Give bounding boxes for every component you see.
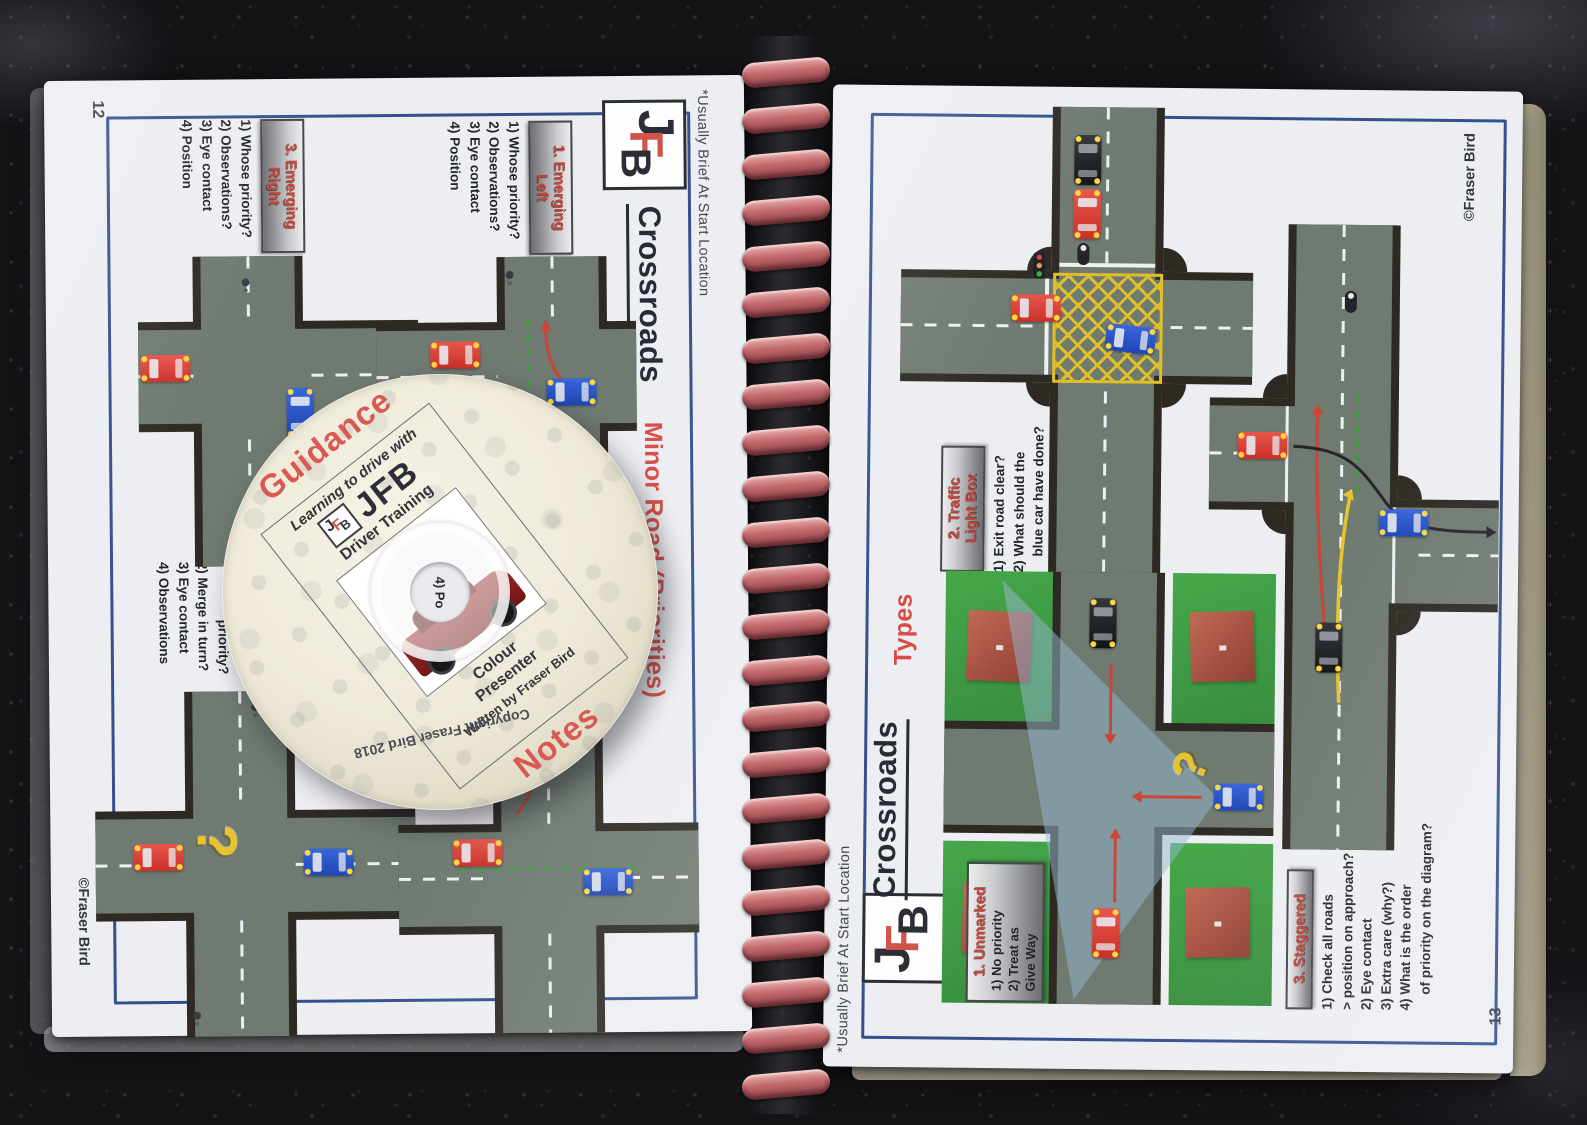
section-heading-line: 2. Traffic bbox=[945, 457, 963, 561]
car-lights bbox=[1378, 509, 1428, 537]
car-lights bbox=[140, 355, 190, 382]
list-item: 4) Position bbox=[177, 120, 198, 254]
kerb-corner bbox=[1398, 475, 1422, 499]
kerb-corner bbox=[1263, 374, 1287, 398]
list-item: 1) Whose priority? bbox=[236, 119, 257, 253]
car-blue bbox=[583, 868, 633, 895]
list-item: 2) Observations? bbox=[484, 121, 505, 255]
cyclist-icon bbox=[1077, 243, 1089, 265]
list-item: 1) Exit road clear? bbox=[989, 426, 1010, 573]
car-lights bbox=[452, 839, 502, 866]
section-heading-box: 2. Traffic Light Box bbox=[940, 446, 985, 572]
list-item: 4) What is the order bbox=[1395, 823, 1416, 1011]
section-heading-box: 1. Unmarked 1) No priority 2) Treat as G… bbox=[966, 862, 1045, 1003]
right-copyright: ©Fraser Bird bbox=[1462, 133, 1479, 221]
motorcyclist-icon bbox=[1345, 291, 1357, 313]
list-item: 3) Eye contact bbox=[197, 120, 218, 254]
section-heading-box: 3. Staggered bbox=[1286, 869, 1314, 1009]
car-lights bbox=[1074, 135, 1102, 185]
kerb-corner bbox=[1396, 611, 1420, 635]
car-red bbox=[1074, 189, 1102, 239]
section-items: 1) Check all roads > position on approac… bbox=[1317, 822, 1436, 1011]
traffic-light-icon bbox=[1033, 253, 1045, 279]
car-blue bbox=[1104, 323, 1157, 356]
page-number-13: 13 bbox=[1487, 1008, 1505, 1026]
section-items: 1) No priority 2) Treat as Give Way bbox=[988, 873, 1040, 992]
list-item: 4) Position bbox=[445, 121, 466, 255]
road-marking bbox=[246, 256, 250, 321]
car-red bbox=[1092, 908, 1120, 958]
list-item: 2) Treat as bbox=[1005, 873, 1023, 991]
list-item: blue car have done? bbox=[1028, 426, 1049, 573]
kerb-corner bbox=[1026, 382, 1050, 406]
list-item: 2) What should the bbox=[1009, 426, 1030, 573]
left-copyright: ©Fraser Bird bbox=[75, 878, 92, 966]
right-margin-note: *Usually Brief At Start Location bbox=[835, 845, 853, 1052]
car-black bbox=[1089, 598, 1117, 648]
jfb-logo-icon: J F B bbox=[862, 893, 947, 984]
binding-gap bbox=[750, 36, 816, 1114]
car-lights bbox=[134, 844, 184, 871]
section-traffic-light-box: 2. Traffic Light Box 1) Exit road clear?… bbox=[940, 425, 1049, 573]
car-lights bbox=[1315, 622, 1343, 672]
section-heading-box: 3. Emerging Right bbox=[260, 119, 305, 253]
photo-of-driver-training-booklet: 12 *Usually Brief At Start Location J F … bbox=[0, 0, 1587, 1125]
left-margin-note: *Usually Brief At Start Location bbox=[694, 89, 712, 296]
right-page: 13 *Usually Brief At Start Location ©Fra… bbox=[823, 84, 1523, 1073]
left-jfb-logo: J F B bbox=[602, 99, 687, 190]
page-title: Crossroads bbox=[867, 719, 910, 901]
section-unmarked: 1. Unmarked 1) No priority 2) Treat as G… bbox=[966, 862, 1045, 1003]
list-item: 1) No priority bbox=[988, 873, 1006, 991]
car-lights bbox=[1089, 598, 1117, 648]
car-lights bbox=[1104, 323, 1157, 356]
car-black bbox=[1074, 135, 1102, 185]
kerb-corner bbox=[1162, 384, 1186, 408]
list-item: > position on approach? bbox=[1337, 822, 1358, 1010]
car-lights bbox=[1074, 189, 1102, 239]
building bbox=[1185, 887, 1249, 957]
right-jfb-logo: J F B bbox=[862, 893, 947, 984]
car-lights bbox=[1011, 294, 1061, 322]
kerb-corner bbox=[1163, 248, 1187, 272]
right-page-title-wrap: Crossroads bbox=[867, 719, 910, 901]
list-item: 3) Eye contact bbox=[465, 121, 486, 255]
section-heading-line: Left bbox=[533, 132, 551, 244]
disc-hub: 4) Po bbox=[370, 522, 510, 662]
car-lights bbox=[304, 848, 354, 875]
list-item: of priority on the diagram? bbox=[1415, 823, 1436, 1011]
car-blue bbox=[546, 378, 596, 405]
jfb-logo-icon: J F B bbox=[602, 99, 687, 190]
section-heading-line: 1. Emerging bbox=[550, 132, 568, 244]
section-emerging-right: 3. Emerging Right 1) Whose priority? 2) … bbox=[177, 119, 305, 254]
cd-disc: Guidance Learning to drive with J F B JF… bbox=[222, 374, 658, 810]
pedestrian-icon bbox=[506, 271, 514, 279]
disc-hole: 4) Po bbox=[410, 562, 470, 622]
section-heading-line: Right bbox=[265, 130, 283, 242]
section-heading-box: 1. Emerging Left bbox=[528, 120, 573, 254]
car-red bbox=[1011, 294, 1061, 322]
page-number-12: 12 bbox=[88, 101, 106, 119]
car-lights bbox=[583, 868, 633, 895]
list-item: Give Way bbox=[1022, 873, 1040, 991]
jfb-letter-b: B bbox=[892, 905, 934, 936]
section-emerging-left: 1. Emerging Left 1) Whose priority? 2) O… bbox=[445, 120, 573, 255]
car-lights bbox=[546, 378, 596, 405]
section-items: 1) Exit road clear? 2) What should the b… bbox=[989, 426, 1049, 573]
car-blue bbox=[304, 848, 354, 875]
section-heading-line: Light Box bbox=[962, 457, 980, 561]
section-staggered: 3. Staggered 1) Check all roads > positi… bbox=[1286, 821, 1437, 1010]
page-text-through-hole: 4) Po bbox=[432, 576, 447, 608]
jfb-letter-b: B bbox=[614, 148, 656, 179]
pedestrian-icon bbox=[242, 278, 250, 286]
car-blue bbox=[1378, 509, 1428, 537]
list-item: 1) Check all roads bbox=[1317, 822, 1338, 1010]
list-item: 1) Whose priority? bbox=[504, 121, 525, 255]
list-item: 2) Eye contact bbox=[1356, 822, 1377, 1010]
road-marking bbox=[550, 257, 554, 322]
diagram-staggered-junction bbox=[1205, 223, 1502, 851]
section-items: 1) Whose priority? 2) Observations? 3) E… bbox=[177, 119, 256, 254]
section-heading-line: 3. Emerging bbox=[282, 130, 300, 242]
car-lights bbox=[1092, 908, 1120, 958]
kerb-corner bbox=[1261, 510, 1285, 534]
car-lights bbox=[1237, 432, 1287, 460]
car-red bbox=[1237, 432, 1287, 460]
car-red bbox=[140, 355, 190, 382]
section-heading-line: 1. Unmarked bbox=[971, 873, 989, 991]
car-red bbox=[452, 839, 502, 866]
car-red bbox=[134, 844, 184, 871]
question-mark: ? bbox=[188, 824, 244, 859]
car-black bbox=[1315, 622, 1343, 672]
section-heading-line: 3. Staggered bbox=[1291, 880, 1309, 998]
section-items: 1) Whose priority? 2) Observations? 3) E… bbox=[445, 121, 524, 256]
list-item: 2) Merge in turn? bbox=[193, 562, 213, 675]
list-item: 3) Extra care (why?) bbox=[1376, 822, 1397, 1010]
list-item: 2) Observations? bbox=[216, 119, 237, 253]
pedestrian-icon bbox=[193, 1012, 201, 1020]
